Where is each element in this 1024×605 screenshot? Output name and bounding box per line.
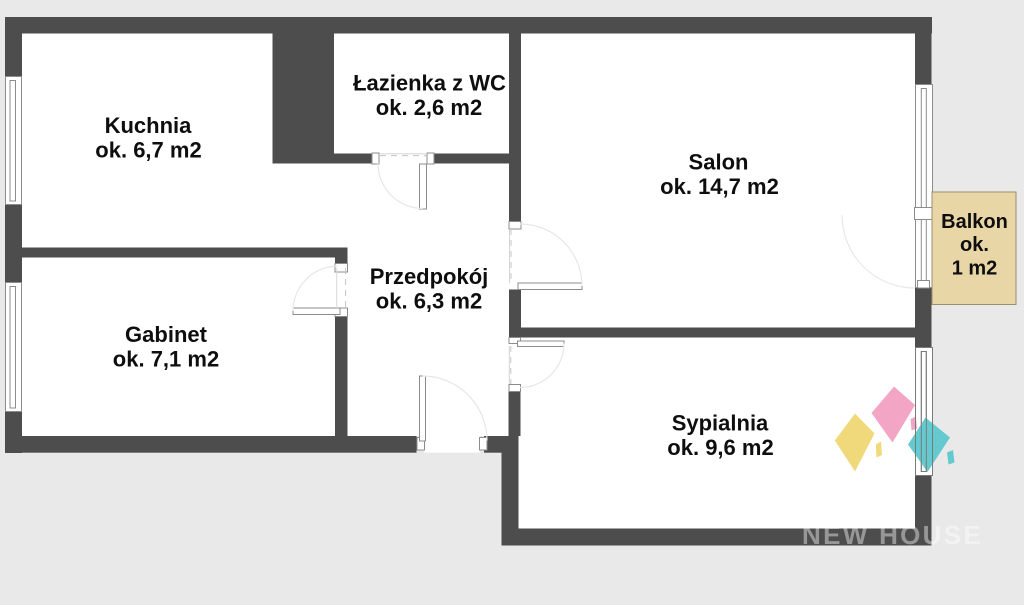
svg-text:ok. 6,3 m2: ok. 6,3 m2 — [376, 289, 482, 314]
svg-text:Balkon: Balkon — [941, 211, 1008, 233]
svg-text:Sypialnia: Sypialnia — [672, 411, 769, 436]
svg-text:Salon: Salon — [689, 150, 749, 175]
svg-text:ok. 9,6 m2: ok. 9,6 m2 — [667, 435, 773, 460]
svg-text:NEW HOUSE: NEW HOUSE — [802, 520, 983, 550]
svg-text:ok. 14,7 m2: ok. 14,7 m2 — [660, 174, 779, 199]
svg-text:ok. 7,1 m2: ok. 7,1 m2 — [113, 347, 219, 372]
svg-text:Gabinet: Gabinet — [125, 322, 208, 347]
svg-text:ok. 2,6 m2: ok. 2,6 m2 — [376, 95, 482, 120]
svg-text:ok.: ok. — [960, 234, 989, 256]
svg-text:ok. 6,7 m2: ok. 6,7 m2 — [95, 138, 201, 163]
svg-text:Kuchnia: Kuchnia — [105, 113, 193, 138]
svg-text:Przedpokój: Przedpokój — [370, 264, 489, 289]
svg-text:Łazienka z WC: Łazienka z WC — [353, 71, 506, 96]
svg-text:1 m2: 1 m2 — [952, 258, 998, 280]
